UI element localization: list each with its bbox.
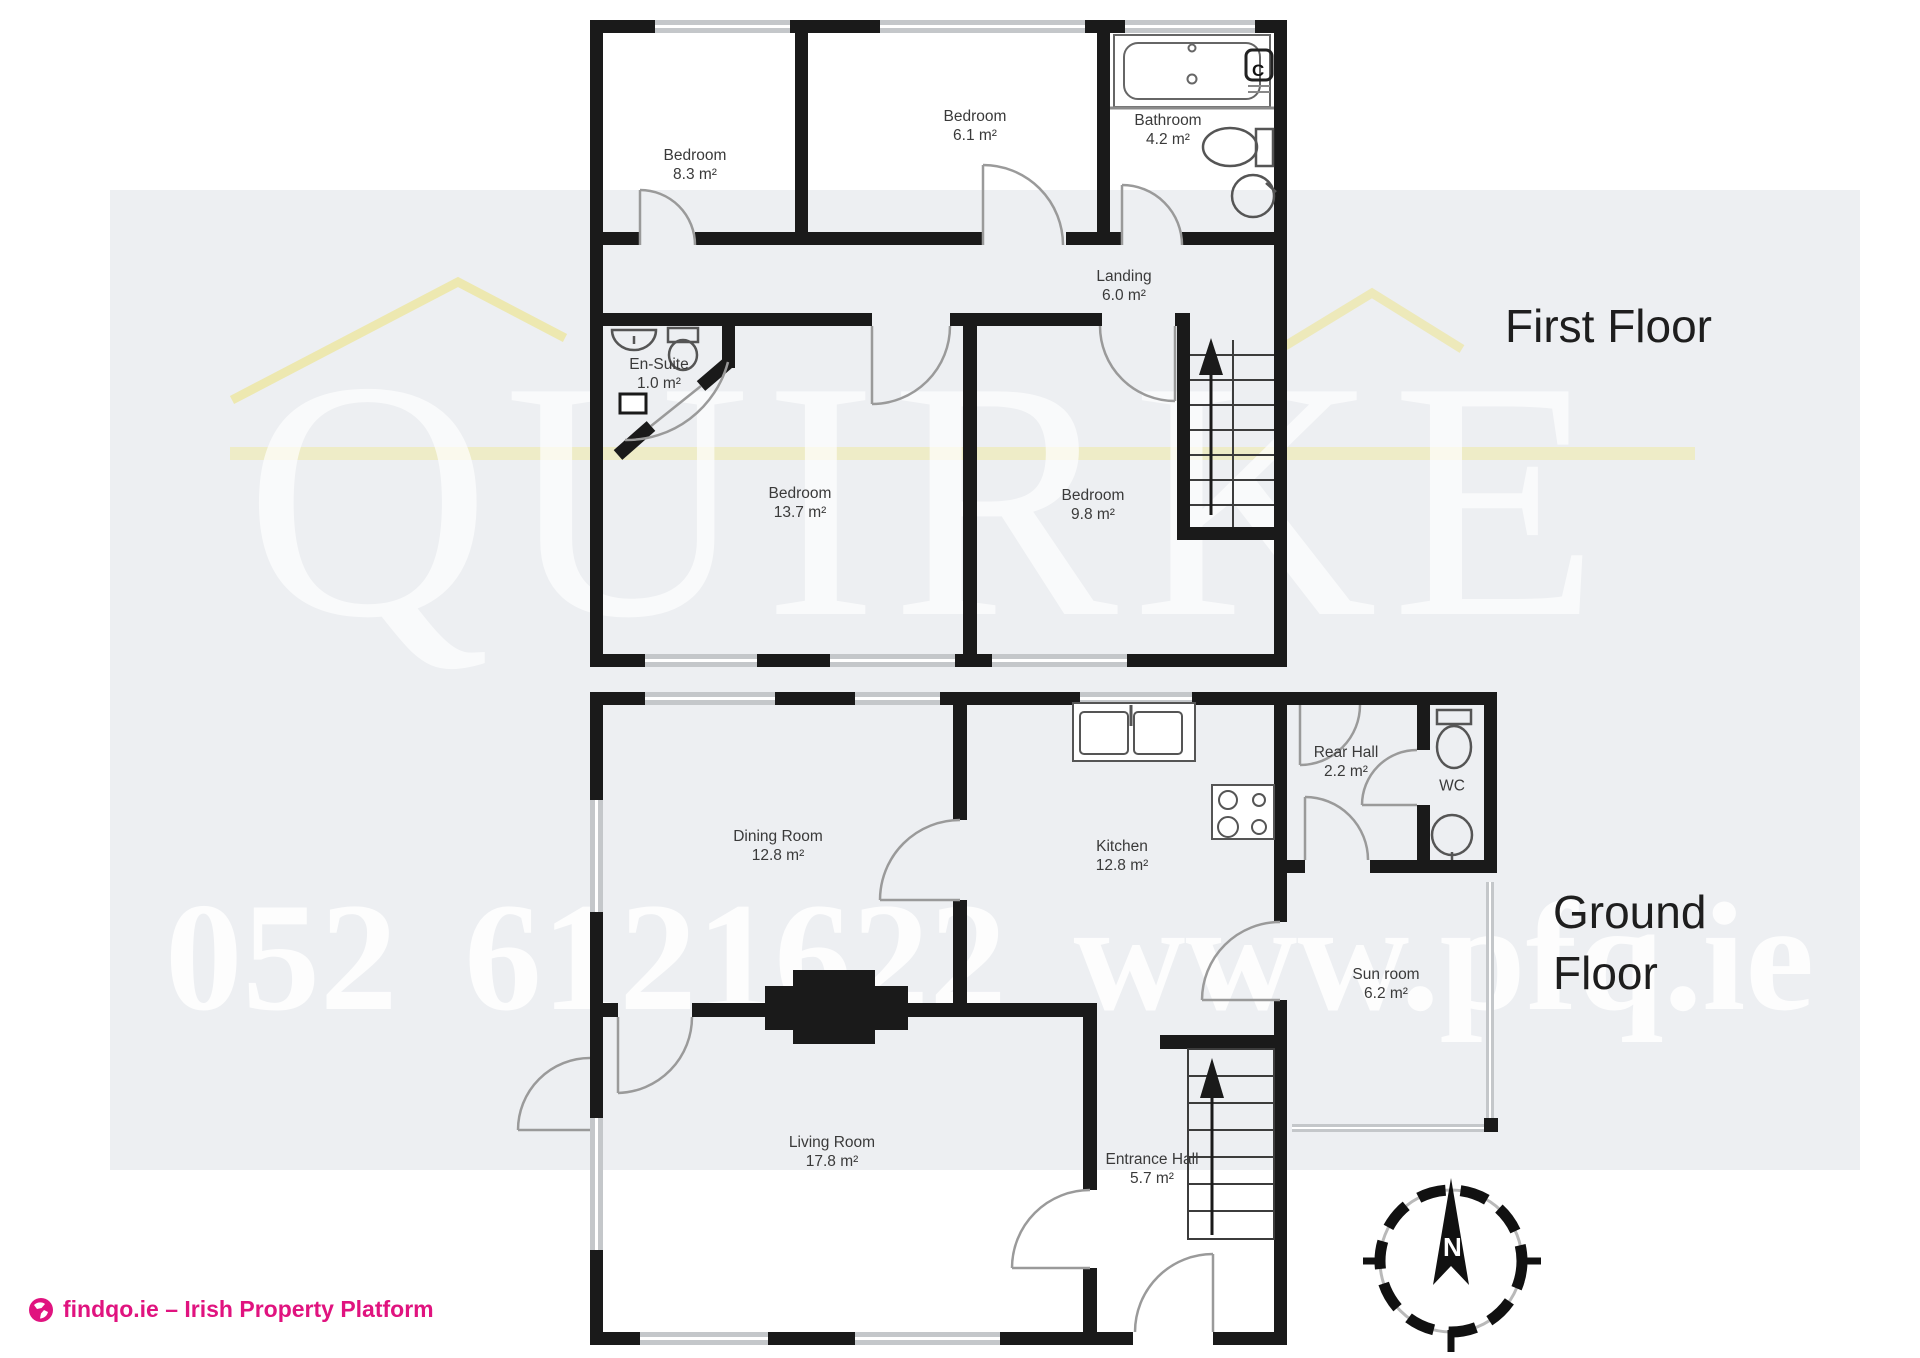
room-label-sun-room: Sun room 6.2 m² (1352, 966, 1419, 1004)
ensuite-sink-icon (612, 330, 656, 350)
wc-toilet-icon (1437, 710, 1471, 768)
ground-floor-walls (590, 692, 1498, 1345)
stove-icon (1212, 785, 1274, 839)
bathtub-icon (1110, 35, 1274, 108)
kitchen-sink-icon (1073, 703, 1195, 761)
first-floor-stairs-arrow (1199, 338, 1223, 515)
room-label-wc: WC (1439, 778, 1465, 797)
first-floor-title: First Floor (1505, 296, 1712, 357)
footer-brand-text: findqo.ie – Irish Property Platform (63, 1296, 434, 1323)
room-label-entrance-hall: Entrance Hall 5.7 m² (1105, 1151, 1198, 1189)
footer-brand: findqo.ie – Irish Property Platform (28, 1296, 434, 1323)
floorplan-drawing: C N (0, 0, 1920, 1358)
wc-sink-icon (1432, 815, 1472, 860)
compass-rose: N (1363, 1178, 1541, 1352)
ground-floor-stairs-arrow (1200, 1058, 1224, 1235)
cylinder-label: C (1252, 61, 1264, 80)
room-label-dining-room: Dining Room 12.8 m² (733, 828, 823, 866)
floorplan-page: QUIRKE 052 6121622 www.pfq.ie (0, 0, 1920, 1358)
bathroom-sink-icon (1232, 175, 1276, 217)
ground-floor-windows (590, 692, 1494, 1345)
ground-floor-title: Ground Floor (1553, 882, 1763, 1003)
ground-floor-stairs (1188, 1049, 1274, 1239)
compass-north-label: N (1443, 1232, 1462, 1262)
room-label-living-room: Living Room 17.8 m² (789, 1134, 875, 1172)
room-label-bathroom: Bathroom 4.2 m² (1134, 112, 1201, 150)
room-label-kitchen: Kitchen 12.8 m² (1096, 838, 1149, 876)
room-label-landing: Landing 6.0 m² (1096, 268, 1151, 306)
globe-icon (28, 1297, 54, 1323)
bathroom-toilet-icon (1203, 128, 1273, 166)
room-label-bedroom-13-7: Bedroom 13.7 m² (769, 485, 832, 523)
room-label-ensuite: En-Suite 1.0 m² (629, 356, 688, 394)
room-label-bedroom-8-3: Bedroom 8.3 m² (664, 147, 727, 185)
room-label-bedroom-9-8: Bedroom 9.8 m² (1062, 487, 1125, 525)
room-label-rear-hall: Rear Hall 2.2 m² (1314, 744, 1379, 782)
room-label-bedroom-6-1: Bedroom 6.1 m² (944, 108, 1007, 146)
ensuite-door-post (620, 394, 646, 413)
